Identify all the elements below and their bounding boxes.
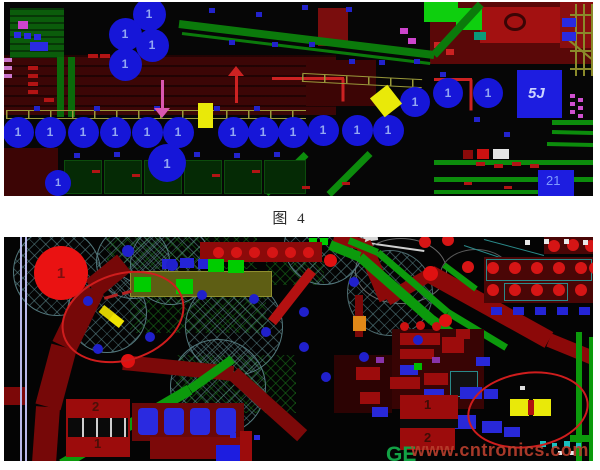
pin-label: 2 <box>92 400 99 414</box>
pcb-screenshot-bottom: 21121GE <box>4 237 593 461</box>
component-pad <box>240 431 252 461</box>
component-pad <box>400 28 408 34</box>
connector-slot <box>400 419 458 428</box>
silkscreen-text-mark <box>342 182 350 185</box>
trace <box>589 337 593 461</box>
pin-pad <box>487 284 499 296</box>
via <box>261 327 271 337</box>
component-pad <box>535 307 546 315</box>
component-pad <box>424 2 458 22</box>
component-outline <box>184 160 222 194</box>
grid-line <box>591 4 593 76</box>
component-body <box>353 316 366 331</box>
silkscreen-text-mark <box>578 106 583 110</box>
capacitor-pad: 1 <box>148 144 186 182</box>
highlight-rect <box>198 103 213 128</box>
silkscreen-text-mark <box>92 170 100 173</box>
pin-pad <box>213 247 224 258</box>
pin-pad <box>509 262 521 274</box>
component-pad <box>579 307 590 315</box>
capacitor-pad: 1 <box>45 170 71 196</box>
arrow-line <box>235 74 238 103</box>
via <box>414 59 420 64</box>
component-pad <box>456 329 470 339</box>
silkscreen-text-mark <box>570 102 575 106</box>
pin-pad <box>548 240 560 252</box>
pin-pad <box>575 262 587 274</box>
ic-label: 5J <box>528 86 545 103</box>
via <box>94 106 100 111</box>
via <box>254 435 260 440</box>
via <box>299 307 309 317</box>
via <box>114 152 120 157</box>
pin-pad <box>509 284 521 296</box>
connector-slot <box>68 418 128 437</box>
trace <box>179 20 435 59</box>
pin-pad <box>249 247 260 258</box>
via <box>544 239 549 244</box>
via <box>229 40 235 45</box>
component-pad <box>477 149 489 159</box>
pin-pad <box>553 262 565 274</box>
down-arrow-annotation <box>154 80 170 118</box>
via <box>256 12 262 17</box>
watermark-text: www.cntronics.com <box>411 440 589 461</box>
trace <box>32 406 60 461</box>
via <box>346 7 352 12</box>
silkscreen-text-mark <box>578 114 583 118</box>
silkscreen-text-mark <box>100 54 110 58</box>
silkscreen-text-mark <box>504 186 512 189</box>
capacitor-pad: 1 <box>342 115 373 146</box>
trace <box>68 57 75 117</box>
pin-pad <box>303 247 314 258</box>
via <box>249 294 259 304</box>
silkscreen-text-mark <box>252 170 260 173</box>
silkscreen-text-mark <box>476 162 485 166</box>
via <box>230 433 236 438</box>
capacitor-pad: 1 <box>433 78 463 108</box>
silkscreen-text-mark <box>212 174 220 177</box>
via <box>272 42 278 47</box>
capacitor-pad: 1 <box>132 117 163 148</box>
figure-caption: 图 4 <box>0 207 580 228</box>
grid-line <box>570 68 593 70</box>
silkscreen-text-mark <box>132 174 140 177</box>
component-pad <box>557 307 568 315</box>
trace <box>57 57 64 117</box>
component-pad <box>446 49 454 55</box>
pin-pad <box>400 322 409 331</box>
capacitor-pad: 1 <box>4 117 34 148</box>
grid-line <box>583 4 585 76</box>
component-pad <box>164 408 184 435</box>
pin-pad <box>231 247 242 258</box>
component-pad <box>463 150 473 159</box>
pcb-screenshot-top: 1111111111111111111115J21 <box>4 2 593 196</box>
component-pad <box>138 408 158 435</box>
component-pad <box>372 407 388 417</box>
test-point <box>439 314 452 327</box>
component-outline <box>224 160 262 194</box>
component-outline <box>104 160 142 194</box>
silkscreen-text-mark <box>28 90 38 94</box>
test-point <box>423 266 438 281</box>
component-pad <box>474 32 486 40</box>
capacitor-pad: 1 <box>35 117 66 148</box>
capacitor-pad: 1 <box>163 117 194 148</box>
via <box>166 259 178 271</box>
pin-pad <box>285 247 296 258</box>
via <box>564 239 569 244</box>
pin-pad <box>462 261 474 273</box>
silkscreen-text-mark <box>578 98 583 102</box>
pin-pad <box>487 262 499 274</box>
via <box>379 60 385 65</box>
pin-pad <box>553 284 565 296</box>
via <box>74 153 80 158</box>
up-arrow-annotation <box>228 66 244 104</box>
pin-pad <box>442 237 454 246</box>
connector-divider <box>124 418 126 437</box>
capacitor-pad: 1 <box>278 117 309 148</box>
silkscreen-text-mark <box>570 94 575 98</box>
silkscreen-text-mark <box>4 58 12 62</box>
via <box>197 290 207 300</box>
capacitor-pad: 1 <box>218 117 249 148</box>
component-pad <box>228 260 244 273</box>
connector-divider <box>110 418 112 437</box>
arrow-head <box>228 66 244 76</box>
silkscreen-text-mark <box>464 182 472 185</box>
board-edge-line <box>20 237 22 461</box>
component-pad <box>14 32 21 38</box>
ic-label: 21 <box>546 174 560 188</box>
via <box>474 117 480 122</box>
component-pad <box>34 34 41 40</box>
component-outline <box>264 160 306 194</box>
trace <box>4 387 26 405</box>
capacitor-pad: 1 <box>400 87 430 117</box>
component-pad <box>18 21 28 29</box>
connector-divider <box>82 418 84 437</box>
trace <box>470 79 473 110</box>
via <box>359 352 369 362</box>
trace <box>546 334 593 365</box>
component-pad <box>360 392 380 404</box>
component-pad <box>180 258 194 268</box>
component-pad <box>562 32 576 41</box>
silkscreen-text-mark <box>4 66 12 70</box>
silkscreen-marking <box>504 13 526 31</box>
capacitor-pad: 1 <box>100 117 131 148</box>
copper-region <box>334 355 392 413</box>
component-pad <box>400 349 434 359</box>
component-pad <box>562 18 576 27</box>
via <box>525 240 530 245</box>
via <box>122 245 134 257</box>
pin-pad <box>267 247 278 258</box>
via <box>194 152 200 157</box>
trace <box>552 120 593 125</box>
test-point <box>324 254 337 267</box>
via <box>234 153 240 158</box>
connector-divider <box>96 418 98 437</box>
via <box>214 106 220 111</box>
silkscreen-text-mark <box>494 164 503 168</box>
capacitor-pad: 1 <box>248 117 279 148</box>
via <box>349 59 355 64</box>
arrow-head <box>154 108 170 118</box>
copper-region <box>4 55 336 115</box>
silkscreen-text-mark <box>28 82 38 86</box>
component-pad <box>356 367 380 380</box>
arrow-line <box>161 80 164 109</box>
component-pad <box>216 408 236 435</box>
capacitor-pad: 1 <box>68 117 99 148</box>
via <box>413 335 423 345</box>
via <box>321 372 331 382</box>
component-pad <box>208 259 224 272</box>
silkscreen-text-mark <box>570 110 575 114</box>
component-pad <box>442 337 464 353</box>
component-pad <box>376 357 384 363</box>
via <box>299 342 309 352</box>
component-pad <box>414 363 422 370</box>
component-pad <box>30 42 48 51</box>
silkscreen-text-mark <box>28 66 38 70</box>
silkscreen-text-mark <box>4 74 12 78</box>
via <box>440 72 446 77</box>
pin-label: 1 <box>94 437 101 451</box>
pin-label: 1 <box>424 398 431 412</box>
trace <box>327 151 373 196</box>
component-pad <box>424 373 448 385</box>
silkscreen-text-mark <box>28 74 38 78</box>
via <box>302 5 308 10</box>
silkscreen-text-mark <box>512 162 521 166</box>
component-pad <box>491 307 502 315</box>
component-pad <box>476 357 490 366</box>
component-pad <box>513 307 524 315</box>
component-pad <box>408 38 416 44</box>
component-pad <box>390 377 420 389</box>
via <box>34 106 40 111</box>
component-pad <box>432 357 440 363</box>
trace <box>552 130 593 135</box>
capacitor-pad: 1 <box>473 78 503 108</box>
via <box>349 277 359 287</box>
via <box>254 106 260 111</box>
via <box>209 8 215 13</box>
via <box>309 42 315 47</box>
trace <box>434 190 544 194</box>
pin-pad <box>416 321 425 330</box>
pin-pad <box>575 284 587 296</box>
component-pad <box>24 33 31 39</box>
capacitor-pad: 1 <box>373 115 404 146</box>
capacitor-pad: 1 <box>109 48 142 81</box>
silkscreen-text-mark <box>44 98 54 102</box>
silkscreen-text-mark <box>88 54 98 58</box>
grid-line <box>570 14 593 16</box>
silkscreen-text-mark <box>302 186 310 189</box>
figure-page: 1111111111111111111115J21 图 4 21121GE ww… <box>0 0 600 470</box>
via <box>583 240 588 245</box>
capacitor-pad: 1 <box>308 115 339 146</box>
via <box>274 152 280 157</box>
component-pad <box>493 149 509 159</box>
via <box>504 132 510 137</box>
pin-pad <box>531 284 543 296</box>
component-pad <box>190 408 210 435</box>
trace <box>547 142 593 147</box>
board-edge-line <box>25 237 27 461</box>
silkscreen-text-mark <box>530 164 539 168</box>
pin-pad <box>531 262 543 274</box>
